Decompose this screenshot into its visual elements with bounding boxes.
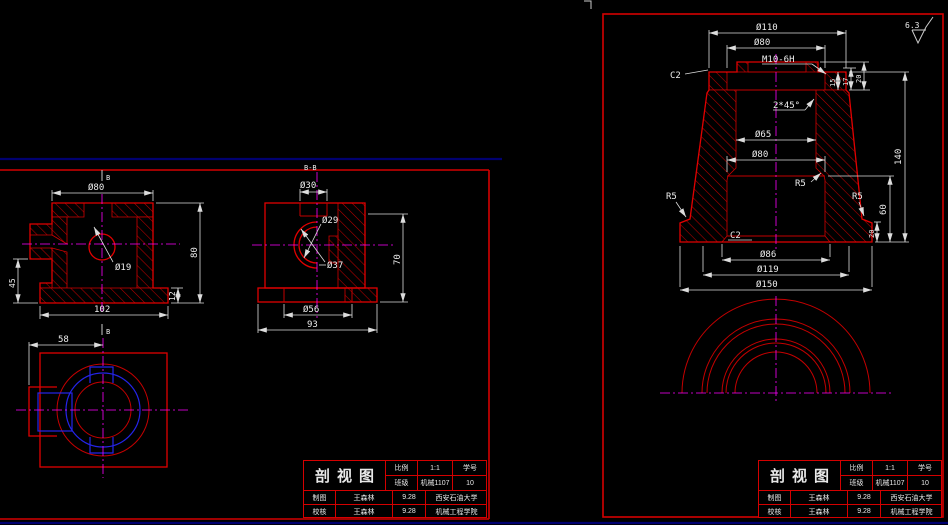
- dim-dia37: Ø37: [327, 260, 343, 271]
- view-c-top: 58: [16, 335, 190, 478]
- student-id-value: 10: [908, 476, 942, 491]
- drawn-date: 9.28: [848, 491, 881, 505]
- dim-depth-17: 17: [842, 78, 850, 86]
- checked-name: 王森林: [336, 505, 393, 518]
- dim-depth-15: 15: [829, 79, 837, 87]
- drawn-label: 制图: [759, 491, 791, 505]
- dim-dia80-top: Ø80: [88, 182, 104, 193]
- dim-dia150: Ø150: [756, 279, 778, 290]
- dim-height-80: 80: [190, 247, 200, 258]
- right-view-bottom-arcs: [660, 296, 892, 402]
- dim-height-70: 70: [393, 254, 403, 265]
- checked-name: 王森林: [791, 505, 848, 518]
- dim-width-102: 102: [94, 305, 110, 315]
- dim-dia110: Ø110: [756, 22, 778, 33]
- dim-dia29: Ø29: [322, 215, 338, 226]
- title-block-left: 剖视图 比例 1:1 学号 班级 机械1107 10 制图 王森林 9.28 西…: [303, 460, 487, 518]
- dim-dia19: Ø19: [115, 262, 131, 273]
- dim-dia80-recess: Ø80: [754, 37, 770, 48]
- roughness-symbol: 6.3: [905, 17, 933, 43]
- dim-thread-m10: M10-6H: [762, 55, 795, 65]
- view-b-section: B-B Ø30 Ø29 Ø37 70 Ø56 93: [252, 164, 408, 333]
- drawing-title: 剖视图: [759, 461, 841, 491]
- checked-date: 9.28: [393, 505, 426, 518]
- dim-dia30: Ø30: [300, 180, 316, 191]
- class-label: 班级: [386, 476, 418, 491]
- school-name: 西安石油大学: [881, 491, 942, 505]
- dim-width-93: 93: [307, 320, 318, 330]
- drawn-name: 王森林: [791, 491, 848, 505]
- section-marker-top: B: [106, 174, 110, 182]
- checked-date: 9.28: [848, 505, 881, 518]
- scale-label: 比例: [841, 461, 873, 476]
- dim-dia56: Ø56: [303, 304, 319, 315]
- dim-height-base-20: 20: [868, 230, 876, 238]
- dim-dia80-lower: Ø80: [752, 149, 768, 160]
- dim-offset-58: 58: [58, 335, 69, 345]
- checked-label: 校核: [304, 505, 336, 518]
- scale-value: 1:1: [418, 461, 453, 476]
- scale-value: 1:1: [873, 461, 908, 476]
- right-view-main-section: Ø110 Ø80 M10-6H C2 2*45° 15 17 20 Ø65 Ø8…: [666, 22, 909, 290]
- cad-canvas: Ø80 80 12 45 102 Ø19 B B B-B: [0, 0, 948, 525]
- dim-height-60: 60: [879, 204, 889, 215]
- dim-c2-top: C2: [670, 71, 681, 81]
- dim-r5-right: R5: [852, 192, 863, 202]
- section-label: B-B: [304, 164, 317, 172]
- student-id-label: 学号: [453, 461, 487, 476]
- drawn-date: 9.28: [393, 491, 426, 505]
- drawing-title: 剖视图: [304, 461, 386, 491]
- drawn-label: 制图: [304, 491, 336, 505]
- dim-height-140: 140: [894, 149, 904, 165]
- student-id-label: 学号: [908, 461, 942, 476]
- section-marker-bottom: B: [106, 328, 110, 336]
- drawn-name: 王森林: [336, 491, 393, 505]
- title-block-right: 剖视图 比例 1:1 学号 班级 机械1107 10 制图 王森林 9.28 西…: [758, 460, 942, 518]
- dim-c2-bottom: C2: [730, 231, 741, 241]
- roughness-value: 6.3: [905, 21, 920, 30]
- class-label: 班级: [841, 476, 873, 491]
- dim-chamfer-2x45: 2*45°: [773, 101, 800, 111]
- class-value: 机械1107: [873, 476, 908, 491]
- dim-dia86: Ø86: [760, 249, 776, 260]
- dim-dia65: Ø65: [755, 129, 771, 140]
- school-name: 西安石油大学: [426, 491, 487, 505]
- checked-label: 校核: [759, 505, 791, 518]
- dim-depth-20: 20: [855, 75, 863, 83]
- dim-dia119: Ø119: [757, 264, 779, 275]
- dim-r5-inner: R5: [795, 179, 806, 189]
- dim-side-45: 45: [8, 278, 17, 288]
- view-a-section: Ø80 80 12 45 102 Ø19 B B: [8, 170, 204, 336]
- student-id-value: 10: [453, 476, 487, 491]
- dim-foot-12: 12: [168, 291, 177, 301]
- class-value: 机械1107: [418, 476, 453, 491]
- college-name: 机械工程学院: [881, 505, 942, 518]
- scale-label: 比例: [386, 461, 418, 476]
- cad-workspace: Ø80 80 12 45 102 Ø19 B B B-B: [0, 0, 948, 525]
- dim-r5-left: R5: [666, 192, 677, 202]
- college-name: 机械工程学院: [426, 505, 487, 518]
